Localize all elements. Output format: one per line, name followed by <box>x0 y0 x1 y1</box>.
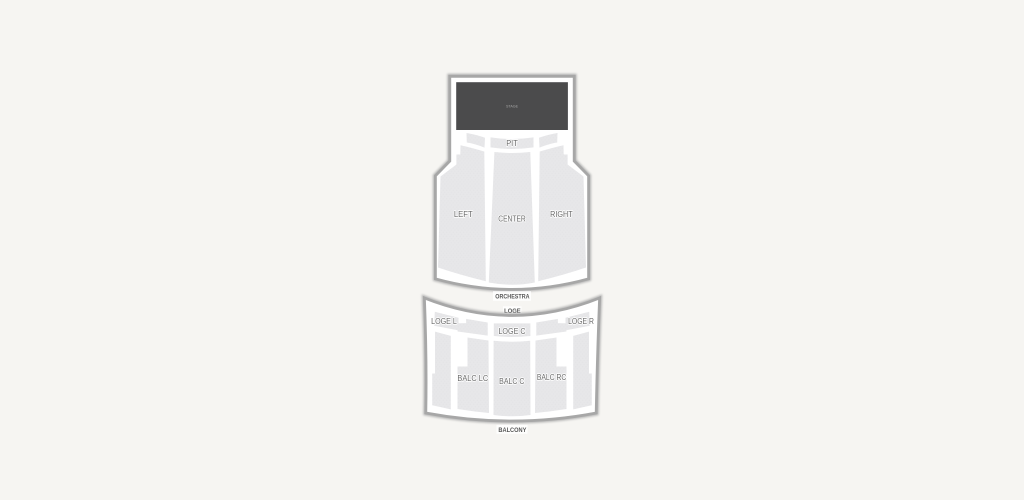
svg-text:STAGE: STAGE <box>506 104 518 109</box>
svg-text:PIT: PIT <box>506 138 518 148</box>
svg-text:CENTER: CENTER <box>498 213 526 223</box>
svg-text:LOGE R: LOGE R <box>568 317 594 326</box>
svg-text:BALC C: BALC C <box>499 377 524 386</box>
svg-text:ORCHESTRA: ORCHESTRA <box>495 293 530 300</box>
svg-text:BALCONY: BALCONY <box>498 427 527 434</box>
svg-text:LOGE C: LOGE C <box>498 327 525 336</box>
svg-text:BALC RC: BALC RC <box>537 373 567 382</box>
svg-text:RIGHT: RIGHT <box>550 209 573 219</box>
svg-text:BALC LC: BALC LC <box>457 374 488 383</box>
svg-text:LOGE L: LOGE L <box>431 317 457 326</box>
svg-text:LEFT: LEFT <box>454 209 473 219</box>
